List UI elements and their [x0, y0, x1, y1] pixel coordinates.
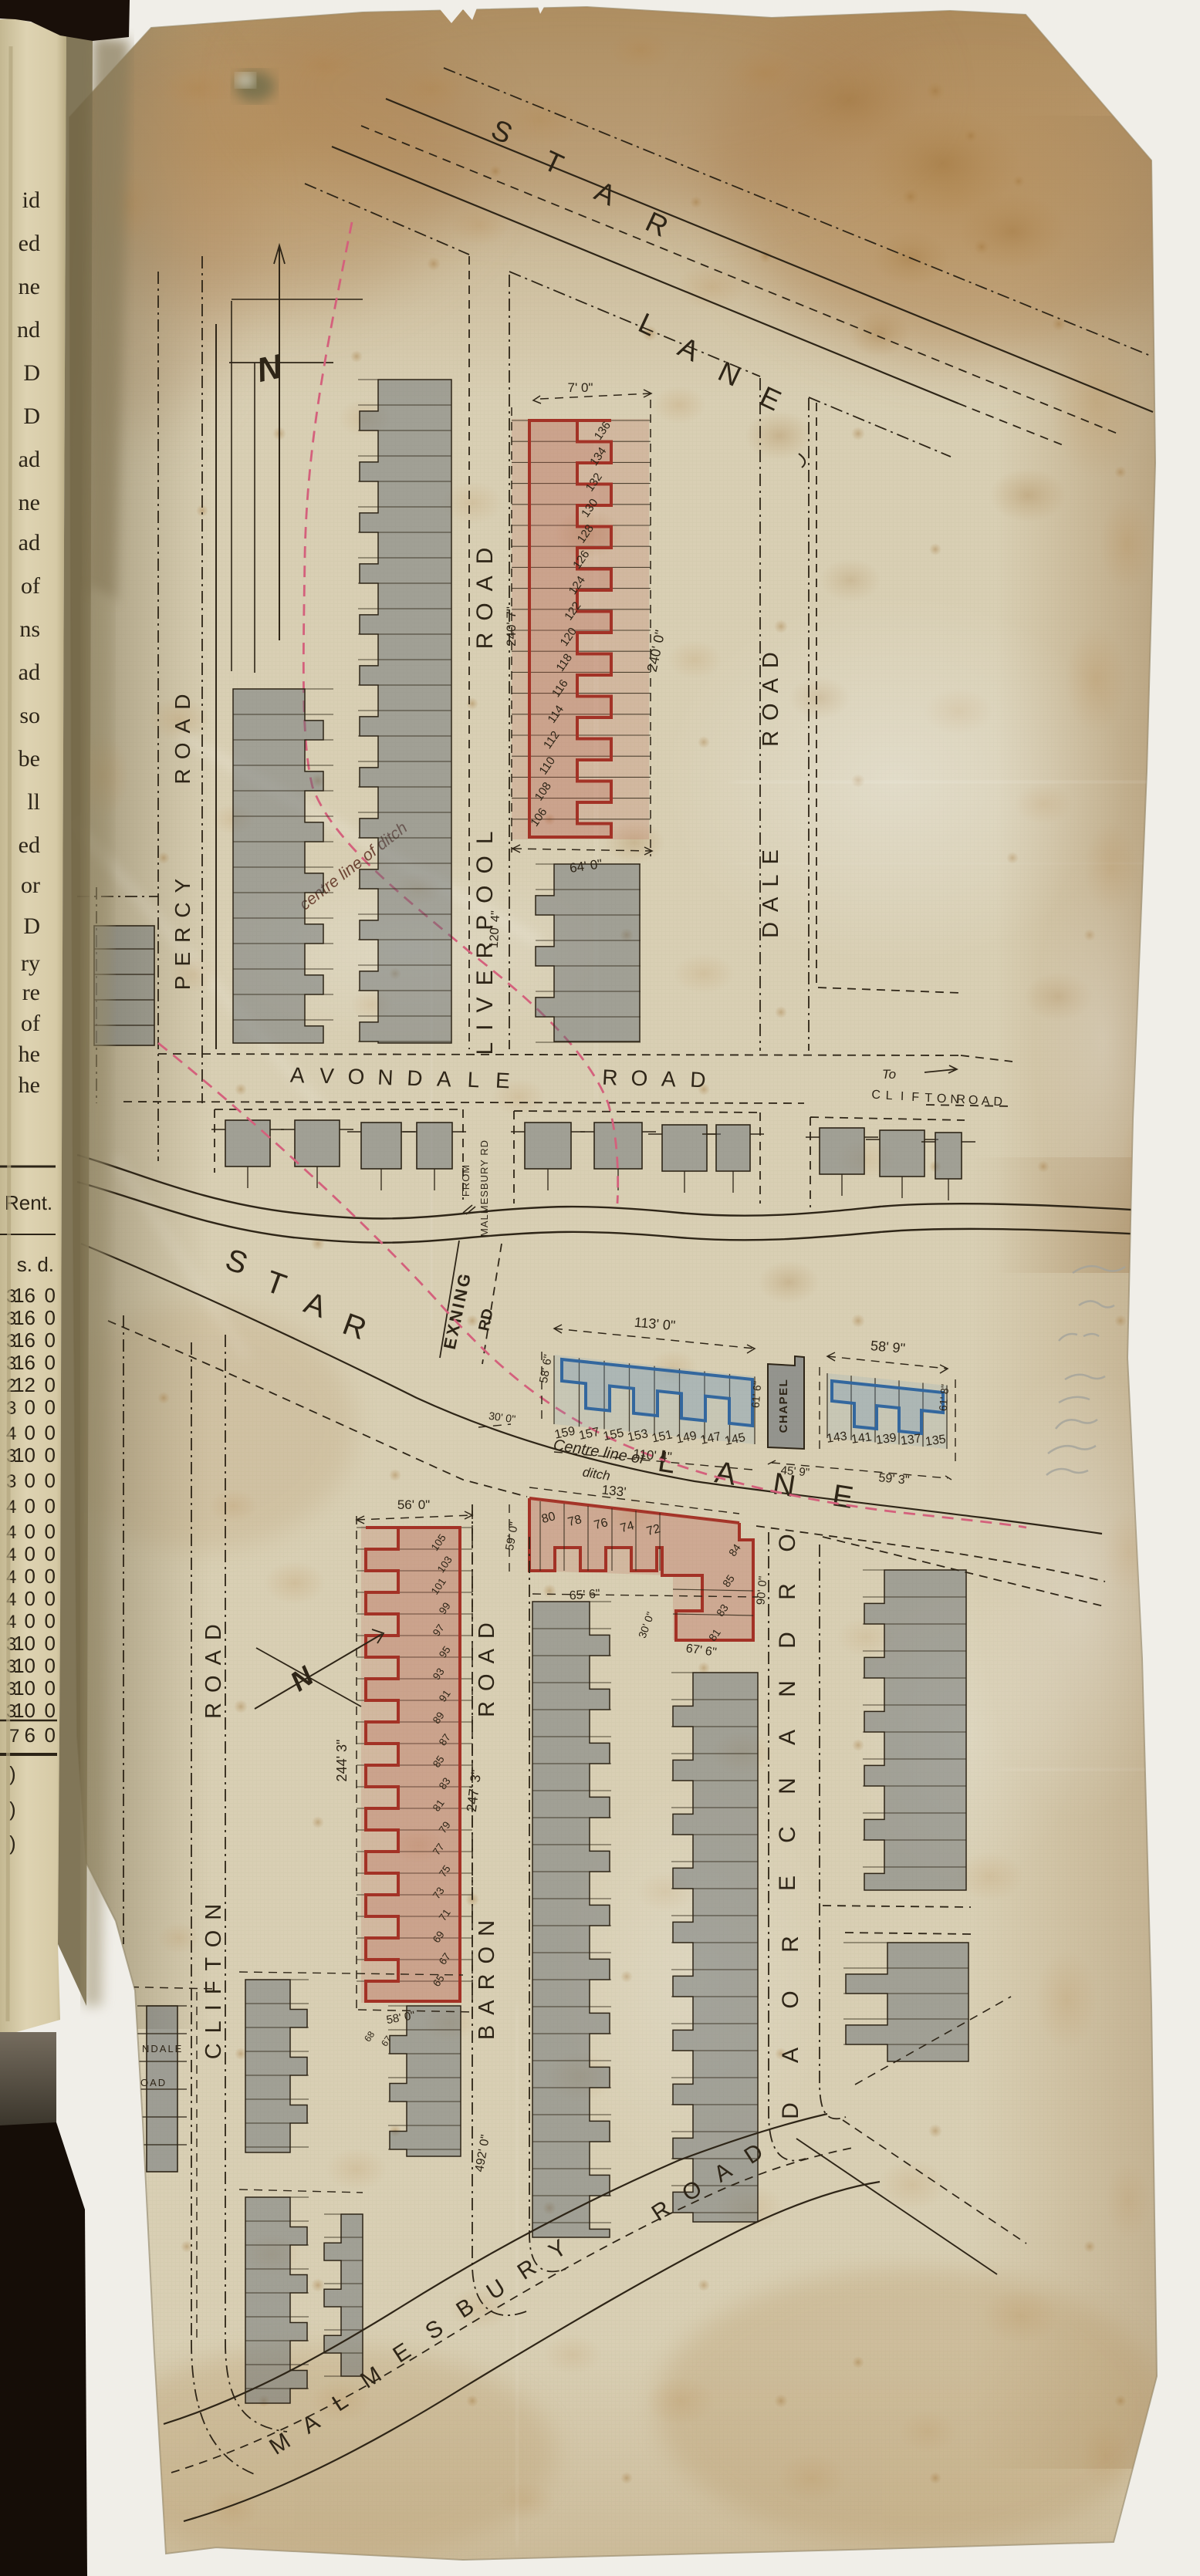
svg-text:0: 0 — [45, 1565, 56, 1588]
svg-text:ROAD: ROAD — [171, 685, 194, 785]
svg-text:d.: d. — [37, 1253, 54, 1276]
svg-text:10: 10 — [13, 1676, 35, 1700]
svg-text:C: C — [871, 1089, 881, 1102]
svg-text:or: or — [21, 873, 40, 898]
svg-text:of: of — [21, 1011, 40, 1036]
svg-text:To: To — [882, 1067, 896, 1082]
svg-text:0: 0 — [45, 1724, 56, 1747]
svg-text:ne: ne — [19, 490, 40, 515]
svg-text:0: 0 — [45, 1373, 56, 1396]
svg-text:7: 7 — [9, 1726, 19, 1747]
svg-text:E: E — [775, 1875, 800, 1891]
svg-text:D: D — [407, 1066, 424, 1091]
svg-text:0: 0 — [25, 1609, 35, 1632]
svg-text:R: R — [956, 1093, 965, 1106]
svg-text:0: 0 — [25, 1494, 35, 1518]
svg-text:16: 16 — [13, 1351, 35, 1374]
svg-text:Rent.: Rent. — [5, 1191, 52, 1214]
svg-text:0: 0 — [45, 1306, 56, 1329]
svg-text:10: 10 — [13, 1654, 35, 1677]
svg-text:NDALE: NDALE — [142, 2043, 183, 2054]
svg-text:ed: ed — [19, 832, 40, 858]
svg-text:0: 0 — [45, 1469, 56, 1492]
svg-text:he: he — [19, 1042, 40, 1067]
svg-text:6: 6 — [25, 1724, 35, 1747]
svg-text:240' 7": 240' 7" — [504, 606, 519, 647]
svg-text:59' 3": 59' 3" — [878, 1471, 910, 1487]
svg-text:I: I — [901, 1090, 904, 1103]
svg-text:A: A — [775, 1730, 800, 1745]
svg-text:D: D — [23, 360, 40, 386]
svg-text:0: 0 — [25, 1542, 35, 1565]
svg-text:O: O — [347, 1064, 365, 1089]
svg-text:58' 9": 58' 9" — [870, 1338, 905, 1356]
svg-text:ROAD: ROAD — [472, 536, 498, 650]
svg-text:E: E — [495, 1069, 510, 1093]
svg-text:ns: ns — [19, 616, 40, 642]
svg-text:0: 0 — [45, 1609, 56, 1632]
svg-text:0: 0 — [45, 1396, 56, 1419]
svg-text:0: 0 — [45, 1351, 56, 1374]
svg-text:D: D — [775, 1632, 800, 1649]
svg-text:MALMESBURY RD: MALMESBURY RD — [478, 1139, 490, 1237]
svg-text:A: A — [436, 1067, 452, 1092]
svg-text:A: A — [661, 1067, 677, 1092]
svg-text:V: V — [319, 1064, 335, 1089]
svg-text:PERCY: PERCY — [171, 869, 194, 990]
svg-text:0: 0 — [25, 1469, 35, 1492]
svg-text:A: A — [778, 2048, 803, 2063]
svg-text:0: 0 — [25, 1421, 35, 1444]
svg-text:CHAPEL: CHAPEL — [777, 1379, 790, 1433]
svg-text:ed: ed — [19, 231, 40, 256]
svg-text:ry: ry — [21, 950, 40, 976]
svg-text:0: 0 — [45, 1699, 56, 1722]
svg-text:61' 6": 61' 6" — [749, 1380, 764, 1408]
svg-text:D: D — [778, 2102, 803, 2119]
svg-text:be: be — [19, 746, 40, 771]
svg-text:45' 9": 45' 9" — [780, 1464, 810, 1479]
svg-text:T: T — [925, 1092, 933, 1105]
svg-text:16: 16 — [13, 1329, 35, 1352]
svg-text:ad: ad — [19, 660, 40, 685]
svg-text:OAD: OAD — [140, 2077, 167, 2088]
svg-text:L: L — [885, 1089, 893, 1102]
svg-text:ROAD: ROAD — [201, 1614, 226, 1719]
svg-text:120' 4": 120' 4" — [488, 910, 503, 949]
svg-text:0: 0 — [45, 1284, 56, 1307]
svg-text:0: 0 — [25, 1587, 35, 1610]
svg-text:0: 0 — [45, 1654, 56, 1677]
svg-text:ROAD: ROAD — [759, 642, 783, 747]
svg-text:0: 0 — [45, 1542, 56, 1565]
svg-text:16: 16 — [13, 1306, 35, 1329]
svg-text:D: D — [690, 1068, 707, 1092]
svg-text:O: O — [775, 1534, 800, 1551]
svg-text:A: A — [982, 1095, 991, 1108]
svg-text:0: 0 — [45, 1587, 56, 1610]
svg-text:N: N — [775, 1778, 800, 1794]
svg-text:N: N — [775, 1680, 800, 1697]
svg-text:so: so — [19, 703, 40, 728]
svg-text:D: D — [23, 403, 40, 429]
svg-text:0: 0 — [45, 1421, 56, 1444]
svg-text:FROM: FROM — [460, 1164, 472, 1197]
svg-text:0: 0 — [45, 1443, 56, 1467]
svg-text:s.: s. — [17, 1253, 32, 1276]
svg-text:12: 12 — [13, 1373, 35, 1396]
svg-text:): ) — [9, 1798, 16, 1821]
svg-text:ad: ad — [19, 530, 40, 555]
svg-text:0: 0 — [45, 1494, 56, 1518]
svg-text:7' 0": 7' 0" — [568, 380, 593, 395]
svg-text:0: 0 — [25, 1565, 35, 1588]
svg-text:ne: ne — [19, 274, 40, 299]
svg-text:ll: ll — [27, 789, 40, 815]
svg-text:10: 10 — [13, 1632, 35, 1655]
svg-text:): ) — [9, 1762, 16, 1785]
svg-text:16: 16 — [13, 1284, 35, 1307]
svg-text:R: R — [775, 1583, 800, 1600]
svg-text:D: D — [993, 1096, 1002, 1109]
svg-text:56' 0": 56' 0" — [397, 1497, 430, 1512]
svg-text:of: of — [21, 573, 40, 599]
svg-text:N: N — [377, 1065, 394, 1090]
svg-text:ad: ad — [19, 447, 40, 472]
svg-text:0: 0 — [45, 1520, 56, 1543]
svg-text:O: O — [968, 1094, 979, 1107]
svg-text:90' 0": 90' 0" — [754, 1575, 769, 1605]
svg-text:ROAD: ROAD — [475, 1612, 499, 1717]
svg-text:0: 0 — [45, 1676, 56, 1700]
svg-text:O: O — [630, 1065, 648, 1090]
svg-text:id: id — [22, 187, 40, 213]
svg-text:10: 10 — [13, 1443, 35, 1467]
svg-text:L: L — [467, 1068, 480, 1092]
svg-text:CLIFTON: CLIFTON — [201, 1894, 226, 2060]
svg-text:R: R — [778, 1936, 803, 1953]
svg-text:A: A — [289, 1063, 306, 1088]
svg-text:C: C — [775, 1826, 800, 1843]
svg-text:0: 0 — [25, 1396, 35, 1419]
svg-text:61' 8": 61' 8" — [937, 1383, 952, 1411]
svg-text:F: F — [911, 1091, 920, 1104]
svg-text:10: 10 — [13, 1699, 35, 1722]
svg-text:O: O — [937, 1092, 947, 1106]
svg-text:DALE: DALE — [759, 839, 783, 938]
svg-text:244' 3": 244' 3" — [334, 1740, 350, 1782]
svg-text:BARON: BARON — [475, 1910, 499, 2040]
svg-text:0: 0 — [25, 1520, 35, 1543]
svg-text:nd: nd — [17, 317, 40, 343]
svg-text:O: O — [778, 1990, 803, 2008]
svg-text:re: re — [22, 980, 40, 1005]
svg-text:he: he — [19, 1072, 40, 1098]
svg-text:): ) — [9, 1832, 16, 1855]
svg-text:0: 0 — [45, 1329, 56, 1352]
svg-text:0: 0 — [45, 1632, 56, 1655]
svg-text:R: R — [602, 1065, 619, 1090]
svg-text:D: D — [23, 913, 40, 939]
